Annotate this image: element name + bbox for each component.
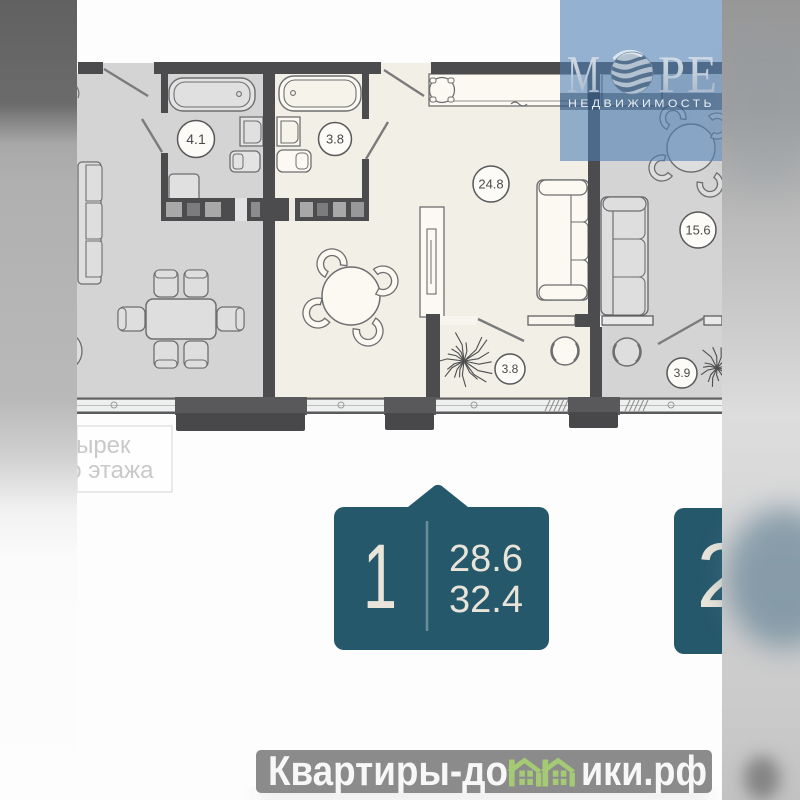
svg-text:ики.рф: ики.рф bbox=[581, 747, 707, 794]
svg-text:Р: Р bbox=[658, 46, 685, 104]
svg-text:28.6: 28.6 bbox=[449, 538, 523, 580]
svg-text:3.8: 3.8 bbox=[326, 132, 344, 147]
svg-text:1: 1 bbox=[363, 526, 397, 628]
svg-text:Е: Е bbox=[687, 46, 717, 104]
svg-text:24.8: 24.8 bbox=[478, 177, 503, 192]
svg-text:15.6: 15.6 bbox=[685, 223, 710, 238]
svg-text:Квартиры-до: Квартиры-до bbox=[268, 747, 508, 794]
svg-text:3.9: 3.9 bbox=[674, 366, 691, 380]
svg-text:3.8: 3.8 bbox=[502, 362, 519, 376]
svg-text:НЕДВИЖИМОСТЬ: НЕДВИЖИМОСТЬ bbox=[568, 98, 715, 110]
svg-text:4.1: 4.1 bbox=[186, 131, 206, 147]
svg-text:32.4: 32.4 bbox=[449, 579, 523, 621]
svg-text:М: М bbox=[567, 46, 600, 104]
